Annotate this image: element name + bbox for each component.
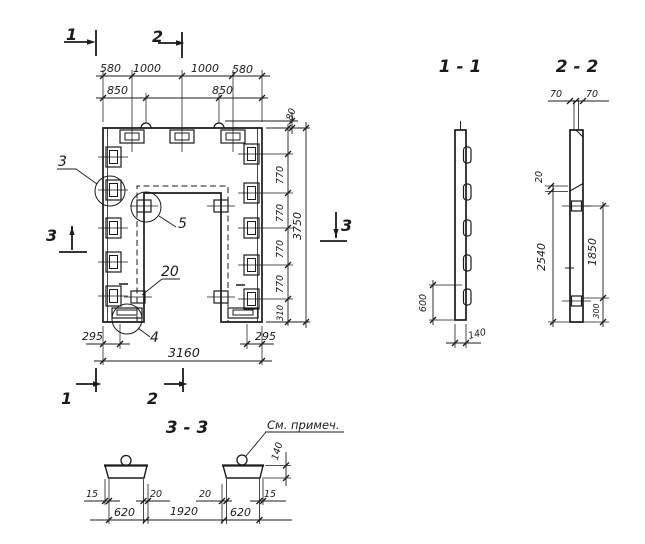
section-2-2-title: 2 - 2 [556, 57, 599, 77]
dim-20-right: 20 [199, 489, 211, 500]
plan-dimensions: 580 1000 1000 580 850 850 80 770 770 770… [82, 62, 310, 364]
section-2-2-details [565, 130, 583, 268]
dim-300: 300 [592, 303, 601, 318]
arrow-icon [333, 229, 338, 238]
dim-770-3: 770 [275, 240, 286, 258]
marker-2-top: 2 [152, 27, 163, 46]
plan-centerlines [98, 70, 293, 365]
section-3-3-left-slab [105, 466, 147, 479]
plan-top-plates [120, 130, 245, 143]
marker-1-bottom: 1 [61, 389, 72, 408]
section-1-1-notches [464, 147, 472, 305]
section-1-1-title: 1 - 1 [439, 57, 482, 77]
section-3-3: 3 - 3 См. примеч. 140 15 20 20 15 620 19… [84, 418, 344, 524]
section-2-2: 2 - 2 70 70 20 2540 1850 300 [534, 57, 609, 327]
detail-circle-5 [131, 192, 161, 222]
dim-1000-right: 1000 [191, 62, 219, 75]
dim-770-2: 770 [275, 204, 286, 222]
note-text: См. примеч. [267, 418, 340, 432]
embed-notch [464, 184, 472, 200]
dim-140-s33: 140 [270, 441, 286, 461]
marker-3-right: 3 [341, 216, 352, 235]
dim-80: 80 [284, 107, 298, 122]
embed-notch [464, 147, 472, 163]
dim-1850: 1850 [586, 238, 599, 266]
dim-1920: 1920 [170, 505, 198, 518]
plan-view: 3 5 20 4 [57, 70, 293, 365]
lifting-loop [121, 456, 131, 466]
dim-850-right: 850 [212, 84, 233, 97]
dim-600: 600 [418, 294, 429, 312]
leg-center-dashes [119, 284, 245, 285]
technical-drawing: 3 5 20 4 1 2 1 2 3 3 580 1000 1000 580 8… [0, 0, 645, 544]
dim-310: 310 [276, 305, 286, 321]
dim-1000-left: 1000 [133, 62, 161, 75]
callout-20-label: 20 [161, 264, 179, 280]
arrow-icon [93, 381, 102, 387]
section-3-3-title: 3 - 3 [166, 418, 209, 438]
dim-580-right: 580 [232, 63, 253, 76]
dim-850-left: 850 [107, 84, 128, 97]
foot-plate-inner [233, 310, 253, 315]
dim-620-left: 620 [114, 506, 135, 519]
section-1-1: 1 - 1 600 140 [418, 57, 487, 348]
dim-295-left: 295 [82, 330, 103, 343]
dim-580-left: 580 [100, 62, 121, 75]
section-2-2-dim-lines [548, 101, 609, 327]
dim-70-right: 70 [586, 89, 598, 100]
callout-5-label: 5 [178, 216, 187, 232]
dim-70-left: 70 [550, 89, 562, 100]
dim-15-left: 15 [86, 489, 98, 500]
callout-4-label: 4 [150, 330, 159, 346]
dim-620-right: 620 [230, 506, 251, 519]
dim-770-1: 770 [275, 166, 286, 184]
section-2-2-wires [574, 100, 579, 130]
drawing-sheet: 3 5 20 4 1 2 1 2 3 3 580 1000 1000 580 8… [0, 0, 645, 544]
callout-leaders [57, 169, 180, 337]
plan-right-plates [244, 144, 259, 309]
dim-770-4: 770 [275, 275, 286, 293]
dim-20-left: 20 [150, 489, 162, 500]
note-leader [246, 432, 344, 456]
dim-15-right: 15 [264, 489, 276, 500]
section-2-2-body [570, 130, 583, 322]
section-1-1-ext-lines [429, 285, 466, 348]
marker-3-left: 3 [46, 226, 57, 245]
dim-295-right: 295 [255, 330, 276, 343]
dim-3750: 3750 [291, 212, 304, 240]
plan-left-plates [106, 147, 121, 306]
foot-plate-inner [117, 310, 137, 315]
section-2-2-ext-lines [545, 186, 609, 322]
marker-1-top: 1 [66, 25, 77, 44]
dim-3160: 3160 [168, 345, 200, 360]
dim-140-s11: 140 [467, 327, 487, 342]
marker-2-bottom: 2 [147, 389, 158, 408]
arrow-icon [176, 40, 185, 46]
callout-3-label: 3 [58, 154, 67, 170]
dim-2540: 2540 [535, 243, 548, 271]
embed-notch [464, 220, 472, 236]
dim-20-s22: 20 [534, 171, 545, 183]
lifting-loop [237, 455, 247, 465]
arrow-icon [69, 227, 74, 236]
embed-notch [464, 255, 472, 271]
embed-notch [464, 289, 472, 305]
section-3-3-right-slab [223, 466, 263, 479]
arrow-icon [87, 39, 96, 45]
plan-foot-plates [112, 308, 258, 318]
section-1-1-body [455, 130, 466, 320]
